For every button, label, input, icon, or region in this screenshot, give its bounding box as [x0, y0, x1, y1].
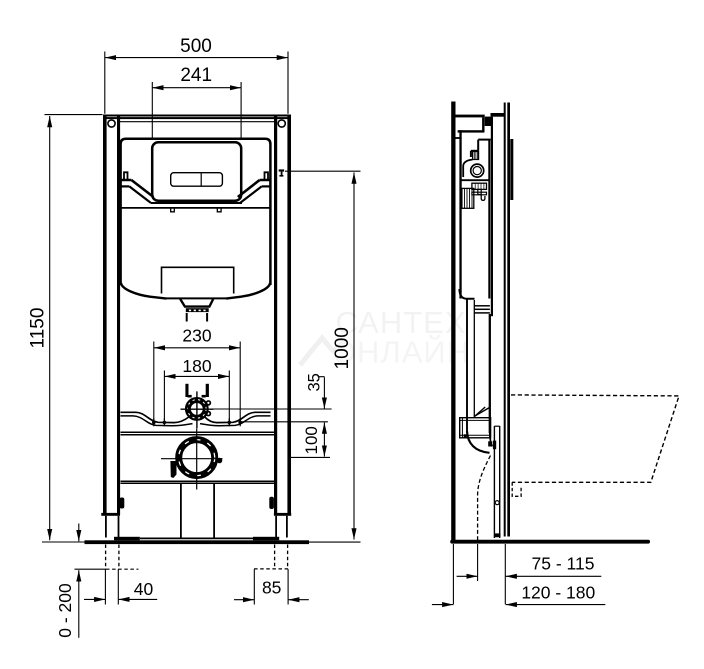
svg-text:100: 100	[302, 426, 321, 454]
svg-text:120 - 180: 120 - 180	[521, 583, 595, 603]
svg-text:75 - 115: 75 - 115	[532, 554, 595, 574]
svg-text:35: 35	[305, 373, 323, 391]
svg-text:500: 500	[180, 36, 212, 57]
svg-text:0 - 200: 0 - 200	[55, 583, 75, 638]
svg-text:1000: 1000	[332, 327, 353, 369]
svg-text:230: 230	[182, 326, 211, 346]
svg-text:241: 241	[180, 65, 212, 86]
svg-text:40: 40	[134, 579, 154, 599]
svg-text:1150: 1150	[28, 308, 49, 349]
svg-text:85: 85	[262, 577, 281, 597]
svg-text:180: 180	[182, 356, 211, 376]
